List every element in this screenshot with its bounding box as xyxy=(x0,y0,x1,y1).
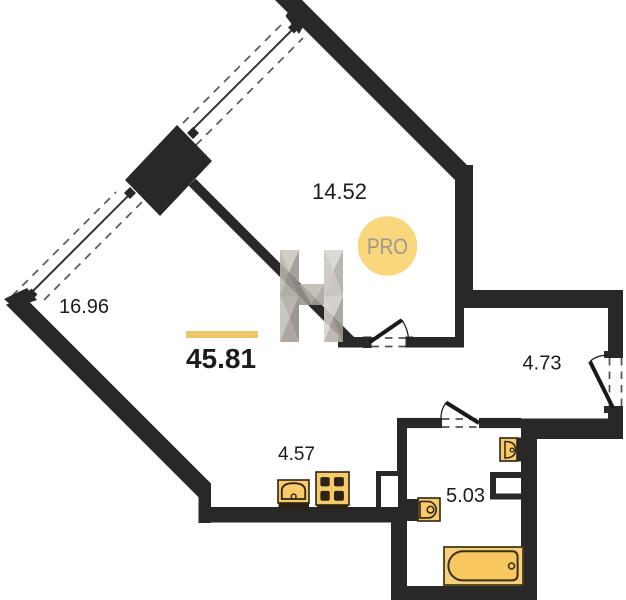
svg-text:4.73: 4.73 xyxy=(523,353,562,375)
svg-text:PRO: PRO xyxy=(367,234,408,259)
svg-text:45.81: 45.81 xyxy=(186,343,256,374)
svg-text:14.52: 14.52 xyxy=(312,179,367,204)
svg-text:16.96: 16.96 xyxy=(59,296,109,318)
svg-text:5.03: 5.03 xyxy=(446,485,485,507)
svg-text:4.57: 4.57 xyxy=(278,444,315,465)
